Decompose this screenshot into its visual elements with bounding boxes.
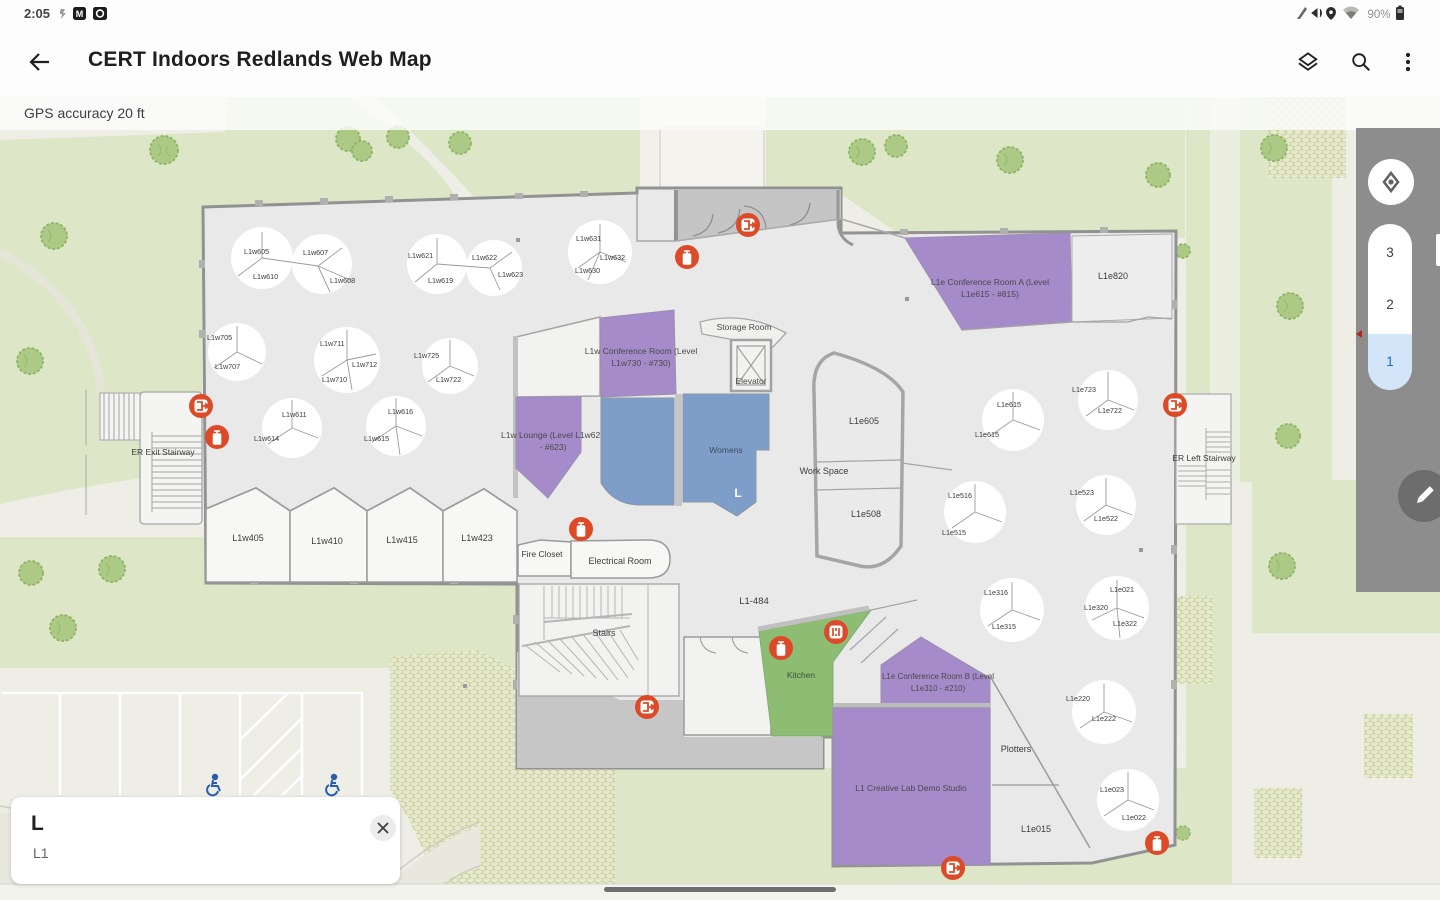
svg-text:L1w631: L1w631 [576,234,601,243]
svg-text:L1w630: L1w630 [575,266,600,275]
svg-text:L1w730 - #730): L1w730 - #730) [611,358,670,368]
svg-text:Kitchen: Kitchen [787,670,816,680]
svg-text:L1w415: L1w415 [386,535,418,545]
svg-text:L1w608: L1w608 [330,276,355,285]
svg-text:L1w710: L1w710 [322,375,347,384]
svg-text:L1w614: L1w614 [254,434,279,443]
svg-text:L1w616: L1w616 [388,407,413,416]
svg-text:L1w712: L1w712 [352,360,377,369]
svg-text:L1e310 - #210): L1e310 - #210) [911,684,966,693]
svg-text:L1e723: L1e723 [1072,385,1096,394]
svg-text:L1e615 - #815): L1e615 - #815) [961,289,1019,299]
svg-text:L1e508: L1e508 [851,509,881,519]
svg-text:Elevator: Elevator [735,376,766,386]
svg-text:Electrical Room: Electrical Room [588,556,651,566]
svg-text:L: L [734,486,741,500]
svg-text:L1w722: L1w722 [436,375,461,384]
svg-text:L1w711: L1w711 [320,339,345,348]
svg-text:L1w622: L1w622 [472,253,497,262]
svg-text:L1e316: L1e316 [984,588,1008,597]
svg-text:L1w605: L1w605 [244,247,269,256]
svg-text:L1w Conference Room (Level: L1w Conference Room (Level [585,346,698,356]
svg-text:L1w611: L1w611 [282,410,307,419]
svg-text:L1w705: L1w705 [207,333,232,342]
svg-text:L1e Conference Room A (Level: L1e Conference Room A (Level [931,277,1049,287]
svg-text:L1w423: L1w423 [461,533,493,543]
svg-text:L1w607: L1w607 [303,248,328,257]
svg-text:L1e315: L1e315 [992,622,1016,631]
svg-text:L1w707: L1w707 [215,362,240,371]
svg-text:L1w725: L1w725 [414,351,439,360]
svg-text:L1e220: L1e220 [1066,694,1090,703]
svg-text:Womens: Womens [709,445,742,455]
svg-text:L1e021: L1e021 [1110,585,1134,594]
svg-text:Plotters: Plotters [1001,744,1032,754]
svg-text:Fire Closet: Fire Closet [521,549,563,559]
svg-text:- #623): - #623) [540,442,567,452]
svg-text:L1w410: L1w410 [311,536,343,546]
svg-text:L1e015: L1e015 [1021,824,1051,834]
svg-text:L1w619: L1w619 [428,276,453,285]
svg-text:L1e022: L1e022 [1122,813,1146,822]
svg-text:L1e023: L1e023 [1100,785,1124,794]
svg-text:L1e Conference Room B (Level: L1e Conference Room B (Level [882,672,994,681]
svg-text:L1e523: L1e523 [1070,488,1094,497]
svg-text:L1e615: L1e615 [997,400,1021,409]
svg-text:ER Exit Stairway: ER Exit Stairway [131,447,195,457]
svg-text:L1e522: L1e522 [1094,514,1118,523]
svg-text:L1 Creative Lab Demo Studio: L1 Creative Lab Demo Studio [855,783,967,793]
svg-text:L1e515: L1e515 [942,528,966,537]
svg-text:L1e320: L1e320 [1084,603,1108,612]
svg-text:L1e722: L1e722 [1098,406,1122,415]
svg-text:L1e222: L1e222 [1092,714,1116,723]
svg-text:M: M [76,9,84,19]
svg-text:L1w621: L1w621 [408,251,433,260]
svg-text:L1w Lounge (Level L1w623: L1w Lounge (Level L1w623 [501,430,605,440]
svg-text:L1w623: L1w623 [498,270,523,279]
svg-text:L1e322: L1e322 [1113,619,1137,628]
svg-text:L1w632: L1w632 [600,253,625,262]
svg-text:L1e605: L1e605 [849,416,879,426]
svg-text:L1-484: L1-484 [739,596,769,607]
svg-text:Stairs: Stairs [592,628,616,638]
svg-text:L1e615: L1e615 [975,430,999,439]
svg-text:ER Left Stairway: ER Left Stairway [1172,453,1236,463]
svg-text:L1w610: L1w610 [253,272,278,281]
svg-text:Storage Room: Storage Room [717,322,772,332]
svg-text:L1w615: L1w615 [364,434,389,443]
svg-text:Work Space: Work Space [800,466,849,476]
svg-text:L1e820: L1e820 [1098,271,1128,281]
svg-text:L1e516: L1e516 [948,491,972,500]
svg-text:90%: 90% [1367,9,1390,21]
svg-text:L1w405: L1w405 [232,533,264,543]
